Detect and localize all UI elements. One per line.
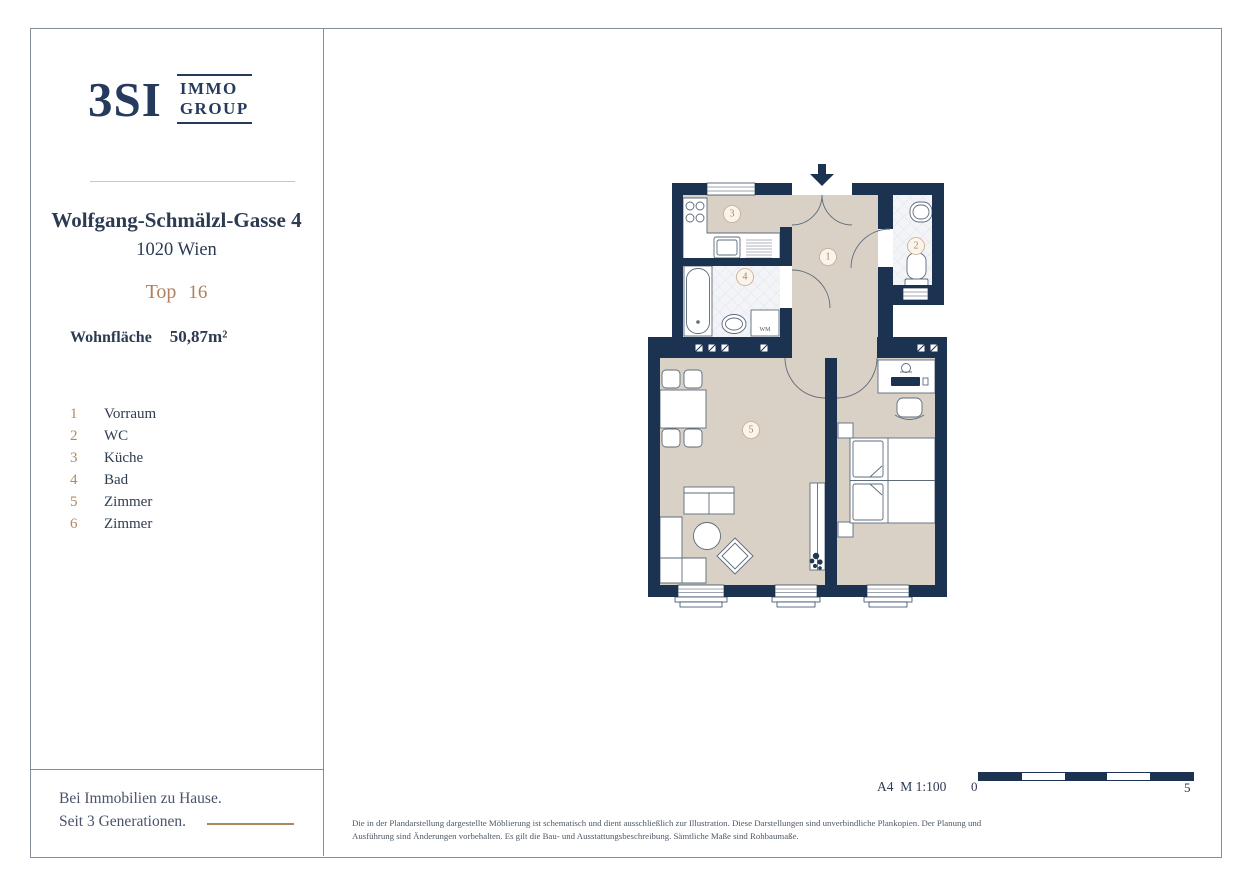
legend-num: 2	[70, 425, 83, 447]
legend-row: 3 Küche	[70, 447, 156, 469]
left-panel-bottom-rule	[30, 769, 323, 770]
scale-bar	[978, 772, 1194, 781]
scale-segment	[1107, 773, 1150, 780]
legend-label: WC	[104, 425, 128, 447]
area-label: Wohnfläche	[70, 329, 152, 347]
scale-segment	[979, 773, 1022, 780]
slogan-accent-line	[207, 823, 294, 825]
room-legend: 1 Vorraum 2 WC 3 Küche 4 Bad 5 Zimmer 6 …	[70, 403, 156, 535]
legend-label: Vorraum	[104, 403, 156, 425]
legend-row: 2 WC	[70, 425, 156, 447]
legend-num: 5	[70, 491, 83, 513]
property-city: 1020 Wien	[30, 240, 323, 261]
legend-row: 6 Zimmer	[70, 513, 156, 535]
page-border-frame	[30, 28, 1222, 858]
scale-segment	[1022, 773, 1065, 780]
scale-segment	[1150, 773, 1193, 780]
badge-bad: 4	[743, 272, 748, 283]
legend-label: Zimmer	[104, 513, 152, 535]
unit-designation: Top16	[30, 281, 323, 304]
property-address: Wolfgang-Schmälzl-Gasse 4	[30, 208, 323, 233]
scale-start-label: 0	[971, 779, 978, 795]
panel-divider-line	[323, 28, 324, 856]
unit-label: Top	[146, 281, 177, 303]
floor-plan: WM	[640, 163, 950, 613]
company-logo: 3SI IMMO GROUP	[88, 74, 252, 124]
badge-zimmer5: 5	[749, 425, 754, 436]
disclaimer-text: Die in der Plandarstellung dargestellte …	[352, 817, 984, 843]
entrance-arrow-icon	[810, 164, 834, 186]
legend-label: Bad	[104, 469, 128, 491]
legend-num: 4	[70, 469, 83, 491]
badge-vorraum: 1	[826, 252, 831, 263]
logo-sub-line1: IMMO	[180, 79, 249, 99]
legend-row: 1 Vorraum	[70, 403, 156, 425]
scale-end-label: 5	[1184, 780, 1191, 796]
legend-row: 4 Bad	[70, 469, 156, 491]
legend-num: 3	[70, 447, 83, 469]
logo-divider-line	[90, 181, 295, 182]
legend-label: Zimmer	[104, 491, 152, 513]
slogan-line2: Seit 3 Generationen.	[59, 811, 222, 834]
logo-text: 3SI	[88, 75, 162, 124]
slogan-line1: Bei Immobilien zu Hause.	[59, 788, 222, 811]
legend-row: 5 Zimmer	[70, 491, 156, 513]
legend-num: 6	[70, 513, 83, 535]
area-value: 50,87m²	[170, 327, 228, 347]
floorplan-page: 3SI IMMO GROUP Wolfgang-Schmälzl-Gasse 4…	[0, 0, 1250, 884]
unit-number: 16	[188, 282, 207, 303]
legend-num: 1	[70, 403, 83, 425]
washing-machine-label: WM	[760, 327, 772, 333]
legend-label: Küche	[104, 447, 143, 469]
company-slogan: Bei Immobilien zu Hause. Seit 3 Generati…	[59, 788, 222, 833]
badge-kueche: 3	[730, 209, 735, 220]
format-scale-label: A4 M 1:100	[877, 779, 946, 795]
logo-sub-line2: GROUP	[180, 99, 249, 119]
living-area-row: Wohnfläche 50,87m²	[70, 327, 227, 347]
logo-subtext: IMMO GROUP	[177, 74, 252, 124]
badge-wc: 2	[914, 241, 919, 252]
scale-segment	[1065, 773, 1108, 780]
